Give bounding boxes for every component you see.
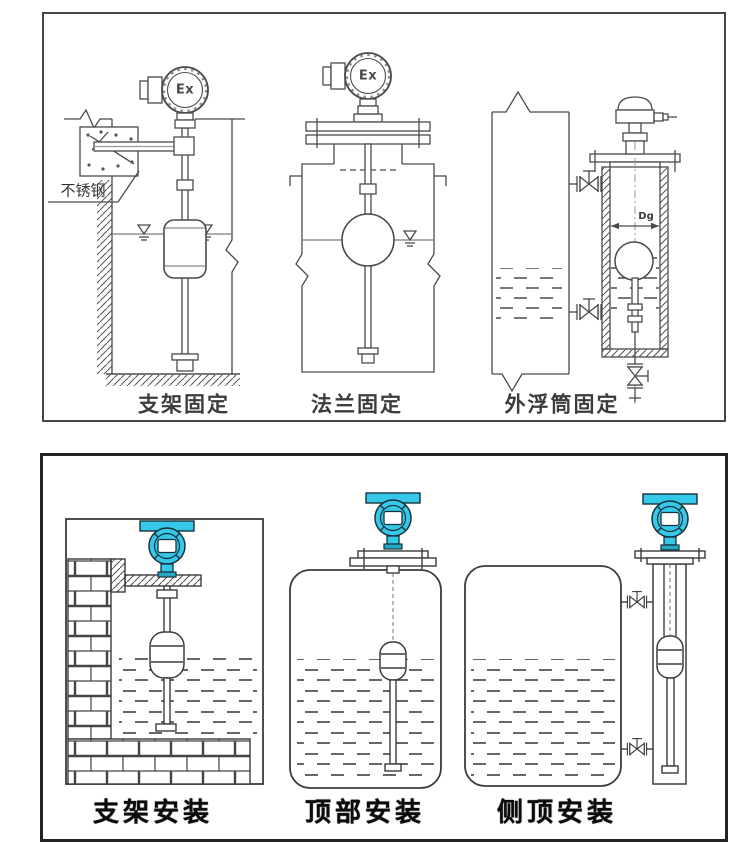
drain-valve-icon [627,364,648,388]
installation-diagram-sheet: { "top_panel": { "diagrams": [ {"id": "b… [0,0,750,840]
stainless-steel-note: 不锈钢 [60,184,105,199]
sensor-stem [390,680,396,764]
caption-top-mounting: 顶部安装 [305,800,425,826]
isolation-valve-icon [577,299,601,320]
float-barrel [657,636,683,678]
bracket-mounting-diagram [66,519,263,784]
ground-hatching [106,375,240,386]
bottom-stop [156,724,176,731]
bottom-stop [358,348,378,354]
ex-mark: Ex [176,84,194,97]
isolation-valve-icon [577,171,601,192]
dg-dimension-label: Dg [638,212,653,222]
bracket-support [111,559,125,592]
fixing-methods-drawing [44,14,724,420]
brick-wall [68,559,111,739]
coupling-nut [177,180,193,190]
sensor-stem [365,144,371,214]
liquid [471,659,615,782]
caption-flange-fixing: 法兰固定 [311,395,403,416]
bottom-stop [172,354,198,360]
float-ball [615,242,653,280]
wall-hatching [97,180,112,374]
external-chamber-fixing-diagram [492,92,680,404]
ex-mark: Ex [359,70,377,83]
installation-methods-panel: 支架安装 顶部安装 侧顶安装 [40,453,728,842]
caption-external-chamber-fixing: 外浮筒固定 [505,395,620,416]
liquid [119,650,257,734]
tank-liquid [496,268,562,320]
connection-valve-icon [627,739,646,756]
tank-wall-break [226,119,238,374]
flange-plate [358,551,428,558]
caption-bracket-fixing: 支架固定 [138,395,230,416]
bottom-stop [662,766,678,773]
flange-plate [306,122,430,131]
float-ball [342,214,394,266]
connection-valve-icon [627,592,646,609]
coupling-nut [360,184,376,194]
brick-floor [68,739,250,784]
side-top-mounting-diagram [465,494,705,786]
coupling-nut [157,590,177,598]
sensor-stem [667,678,674,766]
liquid [297,659,434,782]
flange-plate [635,551,705,558]
wall-top-edge [64,110,112,128]
flange-plate [350,558,436,566]
stem-clamp [174,137,194,155]
storage-tank [492,92,569,391]
caption-side-top-mounting: 侧顶安装 [497,800,617,826]
top-mounting-diagram [290,493,441,788]
float-barrel [150,632,184,678]
bracket-fixing-diagram [48,67,245,386]
installation-methods-drawing [43,456,725,839]
float-barrel [380,642,406,680]
caption-bracket-mounting: 支架安装 [93,800,213,826]
flange-fixing-diagram [290,53,446,372]
fixing-methods-panel: Ex Ex 不锈钢 Dg 支架固定 法兰固定 外浮筒固定 [42,12,726,422]
float-cylinder [164,220,206,278]
flange-plate [306,135,430,144]
junction-box-head [616,97,677,154]
bottom-stop [385,764,401,771]
